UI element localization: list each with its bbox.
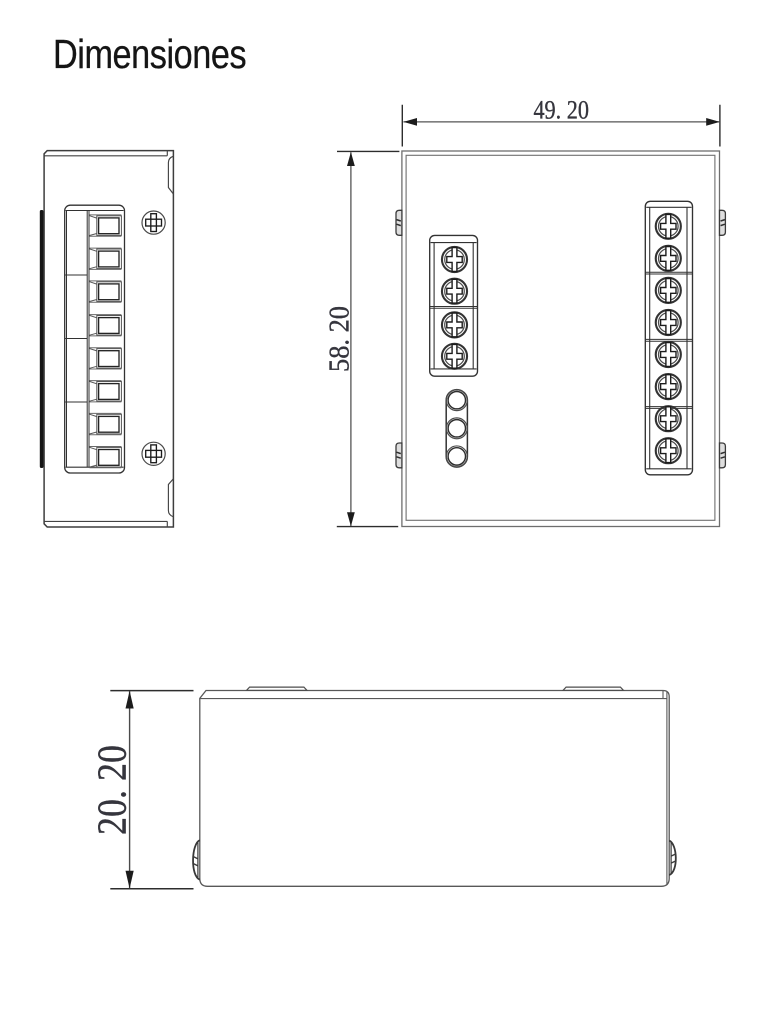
svg-text:58. 20: 58. 20: [324, 306, 355, 372]
svg-text:49. 20: 49. 20: [533, 95, 589, 125]
svg-text:20. 20: 20. 20: [89, 745, 135, 835]
